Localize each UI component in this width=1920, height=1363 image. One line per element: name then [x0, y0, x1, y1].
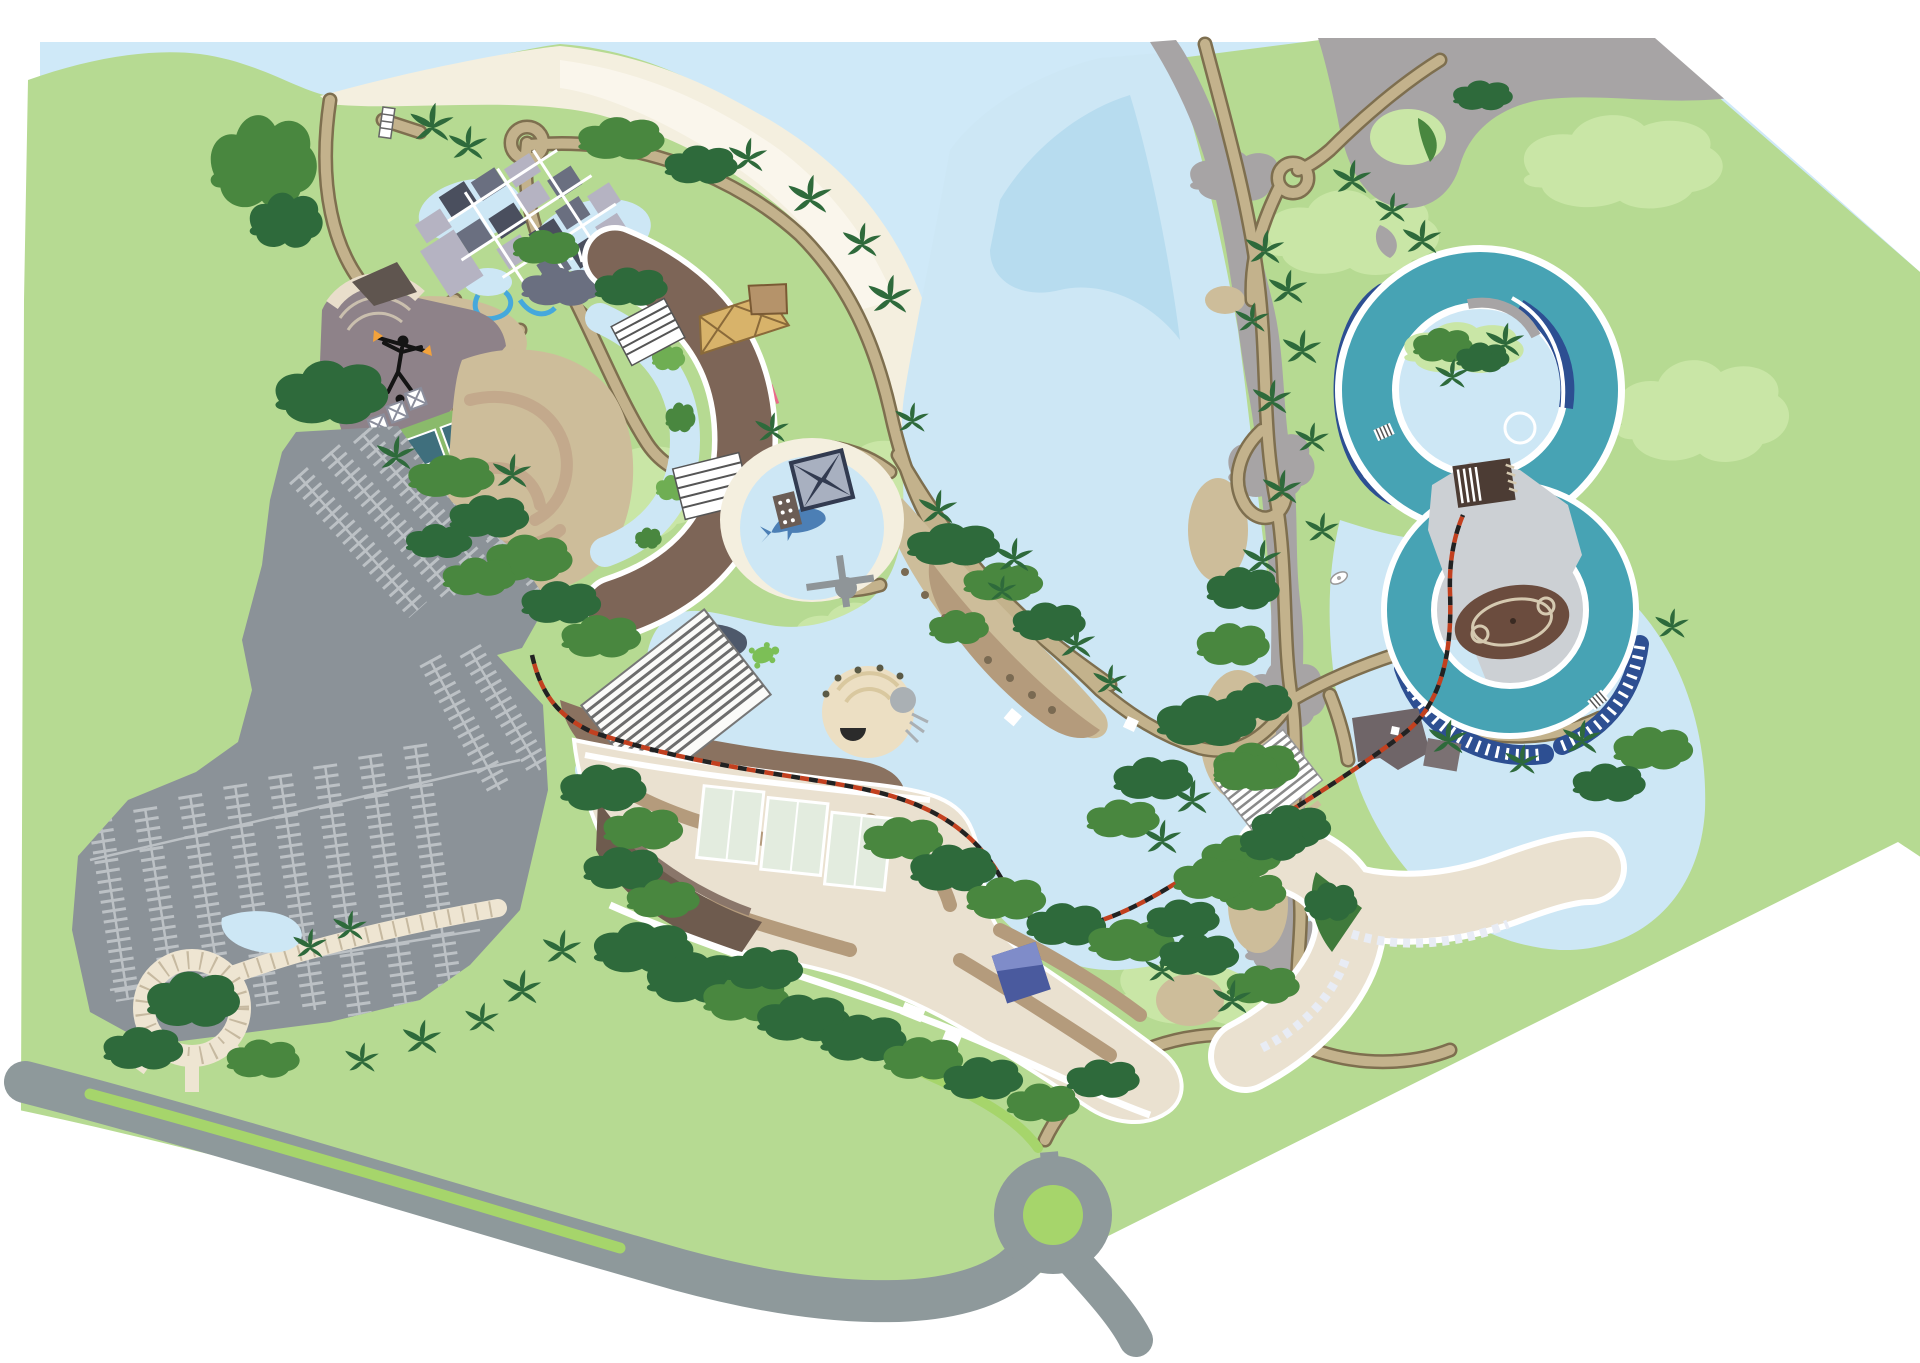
resort-map	[0, 0, 1920, 1363]
sand-patch	[1156, 974, 1224, 1026]
sand-patch	[1205, 286, 1245, 314]
stadium-bleachers	[1452, 458, 1518, 508]
stadium-center	[1510, 618, 1516, 624]
resort-map-canvas	[0, 0, 1920, 1363]
roundabout-island	[1023, 1185, 1083, 1245]
